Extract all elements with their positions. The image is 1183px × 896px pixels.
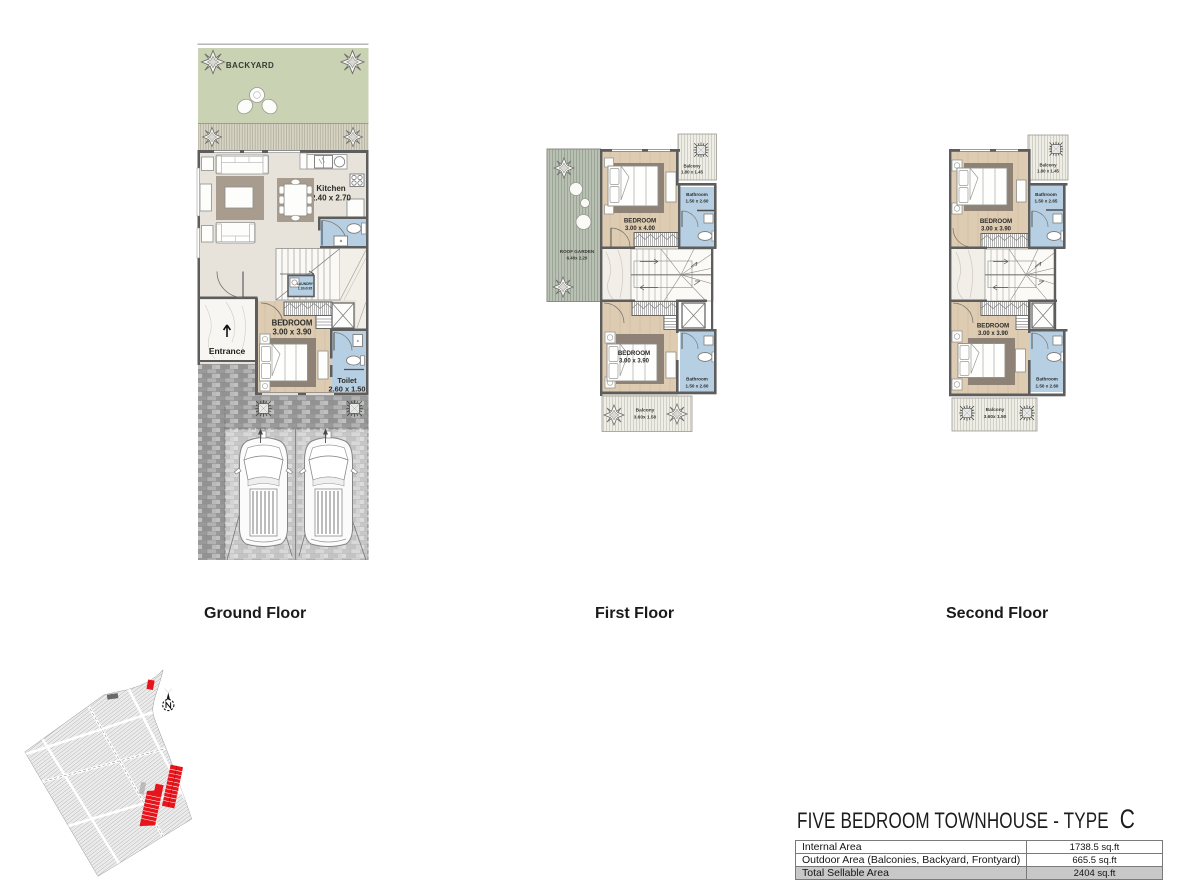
svg-text:Kitchen: Kitchen [316, 184, 345, 193]
svg-text:Balcony: Balcony [986, 407, 1005, 413]
svg-text:1.50 x 2.65: 1.50 x 2.65 [1035, 199, 1058, 204]
svg-text:1.50 x 2.60: 1.50 x 2.60 [686, 199, 709, 204]
svg-text:Entrance: Entrance [209, 346, 246, 356]
svg-text:3.60x 1.50: 3.60x 1.50 [984, 414, 1007, 420]
svg-text:3.00 x 3.90: 3.00 x 3.90 [981, 227, 1012, 233]
svg-text:BACKYARD: BACKYARD [226, 61, 274, 70]
svg-text:ROOF GARDEN: ROOF GARDEN [560, 249, 595, 254]
svg-text:LAUNDRY: LAUNDRY [297, 282, 314, 286]
svg-text:2.60 x 1.50: 2.60 x 1.50 [329, 385, 366, 394]
svg-text:BEDROOM: BEDROOM [980, 218, 1012, 225]
svg-text:Balcony: Balcony [636, 408, 655, 414]
svg-text:Balcony: Balcony [1039, 163, 1057, 168]
svg-text:BEDROOM: BEDROOM [618, 350, 650, 357]
svg-text:2.40 x 2.70: 2.40 x 2.70 [311, 194, 352, 203]
svg-text:Bathroom: Bathroom [686, 192, 708, 197]
svg-text:Balcony: Balcony [683, 164, 701, 169]
svg-text:1.50 x 2.60: 1.50 x 2.60 [1036, 384, 1059, 389]
svg-text:3.60x 1.50: 3.60x 1.50 [634, 415, 657, 421]
svg-text:Bathroom: Bathroom [686, 377, 708, 382]
svg-text:1.10x0.95: 1.10x0.95 [298, 287, 312, 291]
svg-text:BEDROOM: BEDROOM [977, 323, 1009, 330]
svg-text:3.00 x 3.90: 3.00 x 3.90 [619, 359, 650, 365]
svg-text:1.50 x 2.60: 1.50 x 2.60 [686, 384, 709, 389]
svg-text:3.00 x 3.90: 3.00 x 3.90 [978, 331, 1009, 337]
svg-text:Bathroom: Bathroom [1035, 192, 1057, 197]
svg-text:3.00 x 3.90: 3.00 x 3.90 [272, 328, 312, 337]
svg-text:1.80 x 1.45: 1.80 x 1.45 [1037, 169, 1060, 174]
svg-text:BEDROOM: BEDROOM [624, 218, 656, 225]
svg-text:BEDROOM: BEDROOM [272, 319, 313, 328]
svg-text:6.40x 2.20: 6.40x 2.20 [567, 256, 588, 261]
svg-text:3.00 x 4.00: 3.00 x 4.00 [625, 226, 656, 232]
svg-text:1.80 x 1.45: 1.80 x 1.45 [681, 170, 704, 175]
svg-text:Bathroom: Bathroom [1036, 377, 1058, 382]
